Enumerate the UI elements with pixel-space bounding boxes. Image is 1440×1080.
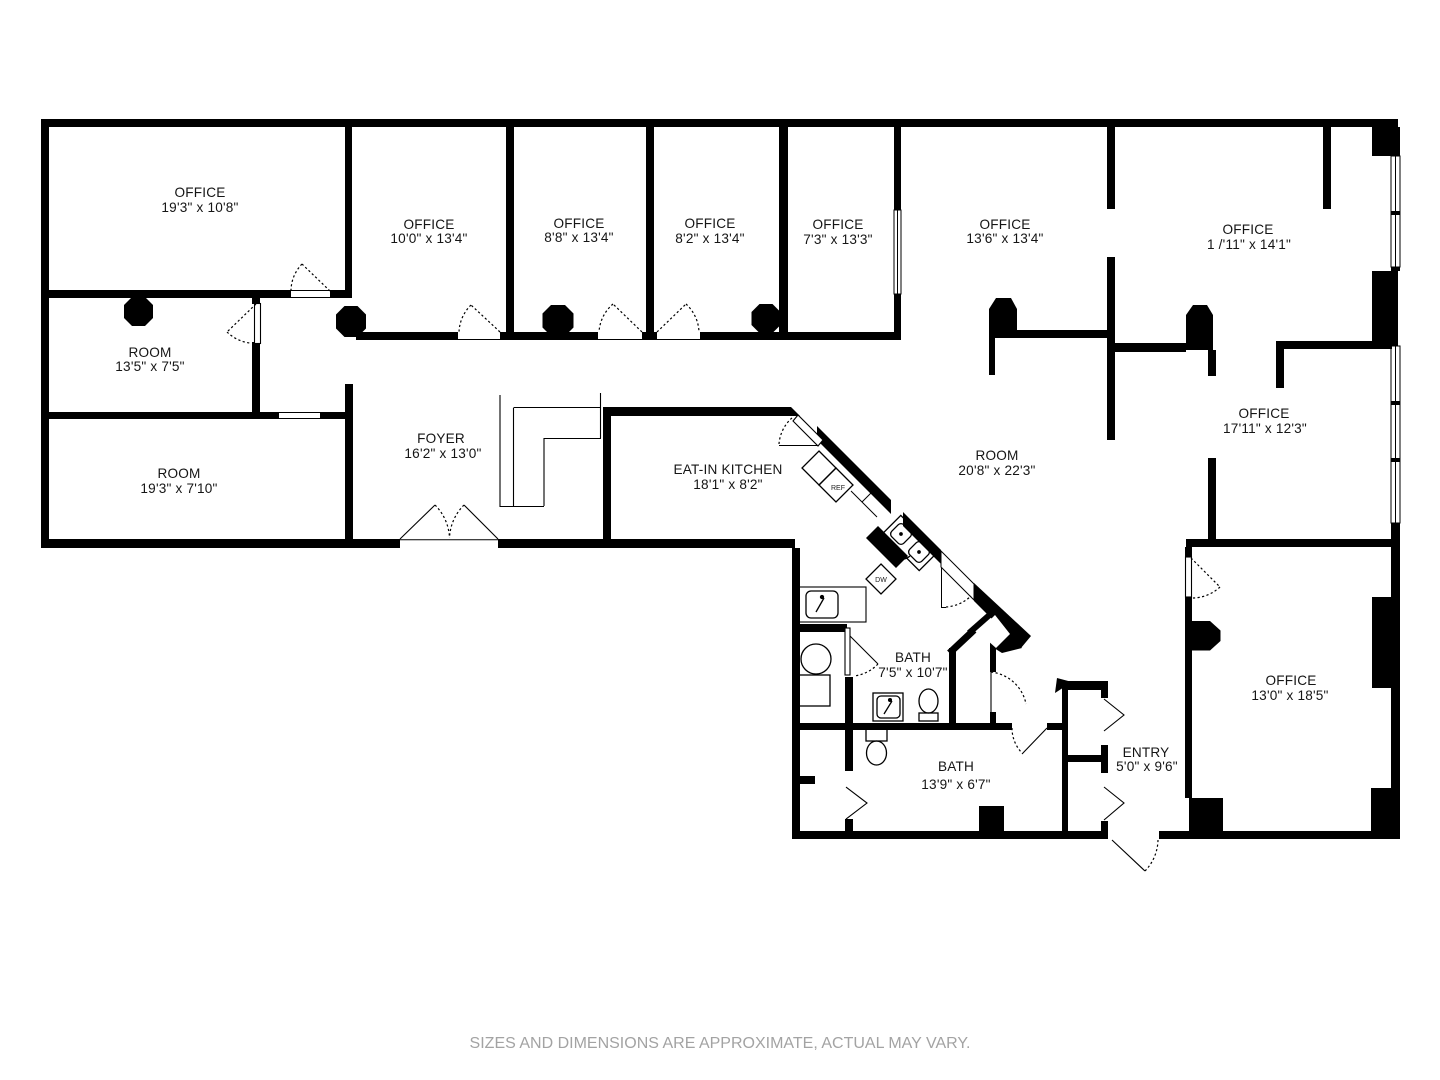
svg-text:7'5" x 10'7": 7'5" x 10'7" — [878, 665, 947, 680]
svg-text:13'0" x 18'5": 13'0" x 18'5" — [1251, 688, 1328, 703]
svg-text:OFFICE: OFFICE — [684, 216, 735, 231]
svg-text:18'1" x 8'2": 18'1" x 8'2" — [693, 477, 762, 492]
svg-text:OFFICE: OFFICE — [979, 217, 1030, 232]
svg-text:19'3" x 7'10": 19'3" x 7'10" — [140, 481, 217, 496]
svg-text:16'2" x 13'0": 16'2" x 13'0" — [404, 446, 481, 461]
svg-text:20'8" x 22'3": 20'8" x 22'3" — [958, 463, 1035, 478]
svg-text:BATH: BATH — [938, 759, 974, 774]
svg-text:OFFICE: OFFICE — [812, 217, 863, 232]
svg-text:OFFICE: OFFICE — [553, 216, 604, 231]
svg-text:8'2" x 13'4": 8'2" x 13'4" — [675, 231, 744, 246]
svg-text:EAT-IN KITCHEN: EAT-IN KITCHEN — [673, 462, 782, 477]
svg-text:13'6" x 13'4": 13'6" x 13'4" — [966, 231, 1043, 246]
svg-text:17'11" x 12'3": 17'11" x 12'3" — [1223, 421, 1307, 436]
svg-text:OFFICE: OFFICE — [403, 217, 454, 232]
svg-text:OFFICE: OFFICE — [1265, 673, 1316, 688]
svg-text:19'3" x 10'8": 19'3" x 10'8" — [161, 200, 238, 215]
svg-text:ROOM: ROOM — [157, 466, 200, 481]
svg-text:7'3" x 13'3": 7'3" x 13'3" — [803, 232, 872, 247]
svg-text:OFFICE: OFFICE — [1222, 222, 1273, 237]
svg-text:BATH: BATH — [895, 650, 931, 665]
svg-text:8'8" x 13'4": 8'8" x 13'4" — [544, 230, 613, 245]
svg-text:REF: REF — [831, 485, 845, 492]
svg-text:10'0" x 13'4": 10'0" x 13'4" — [390, 231, 467, 246]
svg-text:OFFICE: OFFICE — [174, 185, 225, 200]
svg-text:OFFICE: OFFICE — [1238, 406, 1289, 421]
svg-text:5'0" x 9'6": 5'0" x 9'6" — [1116, 759, 1178, 774]
svg-text:ENTRY: ENTRY — [1123, 745, 1170, 760]
svg-text:ROOM: ROOM — [975, 448, 1018, 463]
svg-text:DW: DW — [875, 577, 887, 584]
svg-text:13'5" x 7'5": 13'5" x 7'5" — [115, 359, 184, 374]
svg-text:FOYER: FOYER — [417, 431, 465, 446]
svg-text:ROOM: ROOM — [128, 345, 171, 360]
svg-text:13'9" x 6'7": 13'9" x 6'7" — [921, 777, 990, 792]
svg-text:SIZES AND DIMENSIONS ARE APPRO: SIZES AND DIMENSIONS ARE APPROXIMATE, AC… — [470, 1035, 971, 1052]
svg-text:1 /'11" x 14'1": 1 /'11" x 14'1" — [1207, 237, 1291, 252]
